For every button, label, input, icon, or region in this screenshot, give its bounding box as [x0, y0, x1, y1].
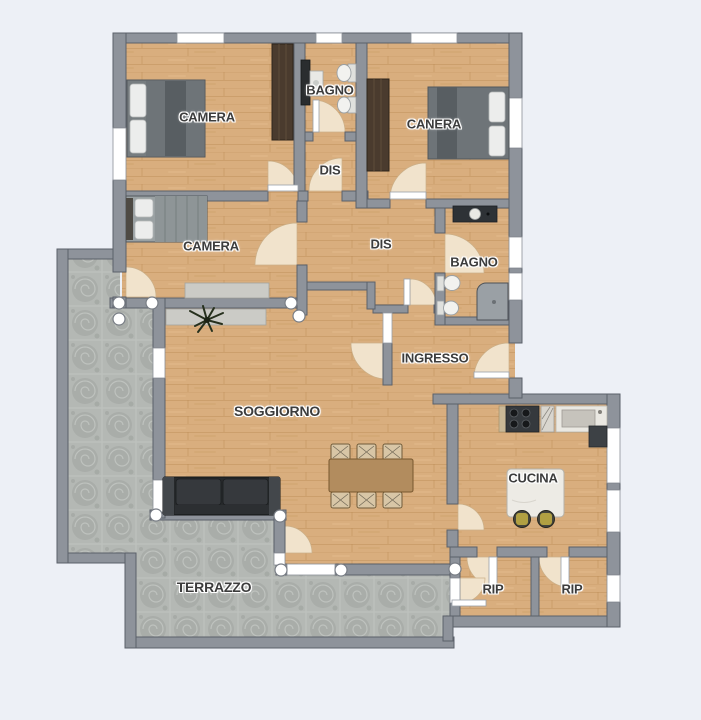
room-label-dis-2: DIS: [370, 237, 391, 252]
bidet-icon: [338, 97, 351, 113]
room-label-rip-2: RIP: [561, 582, 582, 597]
bidet-icon: [444, 301, 459, 315]
washbasin-icon: [470, 209, 481, 220]
console-camera-2: [185, 283, 269, 298]
fridge-icon: [589, 426, 607, 447]
floor-plan: CAMERA BAGNO CANERA DIS CAMERA DIS BAGNO…: [0, 0, 701, 720]
room-label-dis-1: DIS: [319, 163, 340, 178]
floor-plan-svg: [0, 0, 701, 720]
dining-table: [329, 459, 413, 492]
wardrobe-canera: [367, 79, 389, 171]
dining-set: [329, 444, 413, 508]
sofa: [163, 477, 280, 515]
wardrobe-camera-1: [272, 44, 293, 140]
room-label-cucina: CUCINA: [508, 471, 557, 486]
toilet-icon: [337, 65, 351, 82]
room-label-soggiorno: SOGGIORNO: [234, 403, 320, 419]
room-label-canera: CANERA: [407, 117, 461, 132]
room-label-ingresso: INGRESSO: [401, 351, 468, 366]
room-label-bagno-1: BAGNO: [306, 83, 353, 98]
room-label-bagno-2: BAGNO: [450, 255, 497, 270]
room-label-camera-1: CAMERA: [179, 110, 235, 125]
room-label-rip-1: RIP: [482, 582, 503, 597]
room-label-terrazzo: TERRAZZO: [177, 579, 252, 595]
room-label-camera-2: CAMERA: [183, 239, 239, 254]
kitchen-sink-icon: [562, 410, 595, 427]
bed-camera-2: [126, 196, 207, 242]
toilet-icon: [444, 276, 460, 291]
